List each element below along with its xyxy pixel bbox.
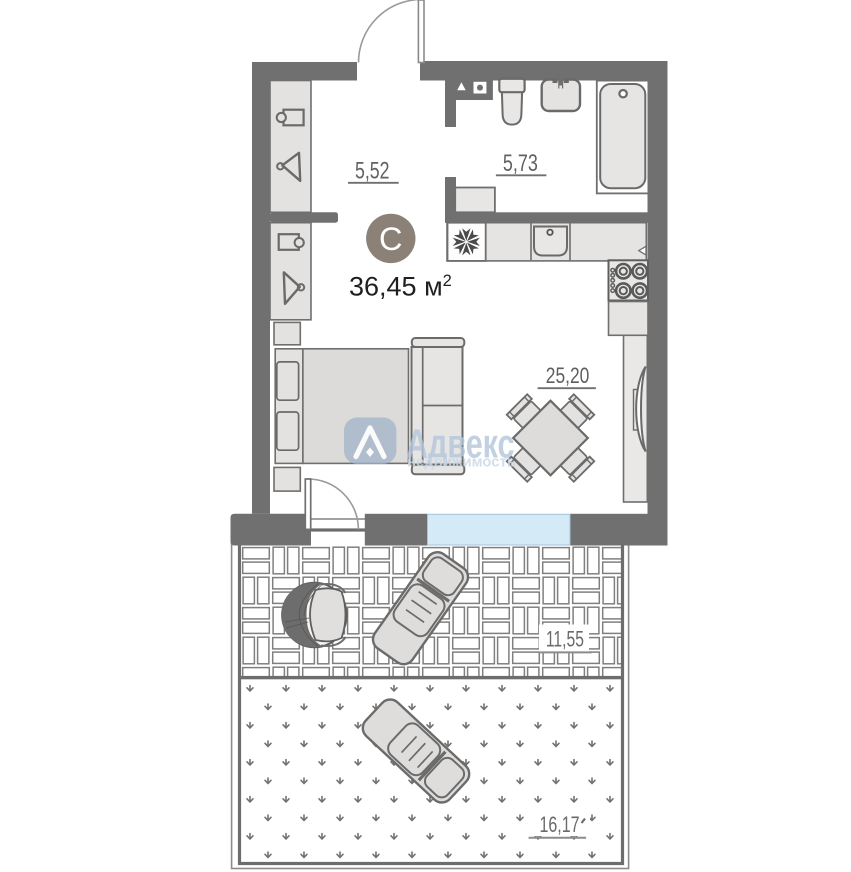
svg-text:C: C [379, 221, 402, 257]
svg-text:16,17: 16,17 [540, 812, 580, 837]
svg-text:36,45 м2: 36,45 м2 [349, 272, 452, 302]
svg-text:11,55: 11,55 [546, 627, 584, 652]
svg-text:25,20: 25,20 [546, 363, 590, 388]
svg-text:недвижимость: недвижимость [407, 455, 516, 471]
svg-text:5,52: 5,52 [355, 158, 390, 185]
svg-text:5,73: 5,73 [503, 150, 538, 177]
